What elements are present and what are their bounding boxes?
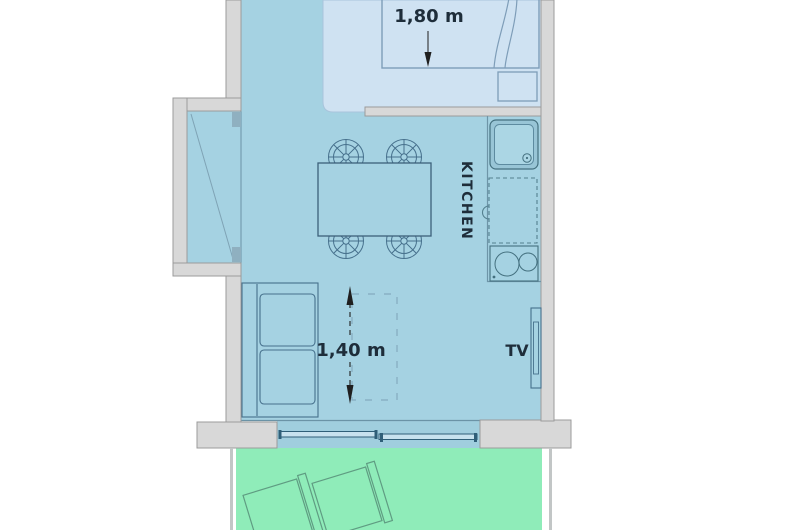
floor-plan: 1,80 m 1,40 m KITCHEN TV — [0, 0, 800, 530]
wall-bottom-left-block — [197, 422, 277, 448]
window-recess-floor — [187, 111, 241, 263]
door-panel-end — [380, 433, 383, 442]
terrace-right-edge — [549, 448, 552, 530]
wall-recess-left — [173, 98, 187, 276]
tv-label: TV — [505, 341, 529, 360]
floor-plan-drawing: 1,80 m 1,40 m KITCHEN TV — [0, 0, 800, 530]
door-panel-end — [474, 433, 477, 442]
wall-left-lower — [226, 276, 241, 423]
window-jamb-top — [232, 112, 241, 127]
wall-bedroom-divider — [365, 107, 541, 116]
window-recess — [187, 111, 241, 263]
cooktop-knob — [493, 276, 496, 279]
bed-dimension-label: 1,80 m — [394, 6, 463, 27]
terrace-left-edge — [230, 448, 233, 530]
wall-recess-bottom — [173, 263, 241, 276]
sofa-dimension-label: 1,40 m — [316, 340, 385, 361]
sliding-door-panel — [379, 434, 477, 440]
wall-bottom-right-block — [480, 420, 571, 448]
dining-table — [318, 163, 431, 236]
window-jamb-bottom — [232, 247, 241, 262]
door-panel-end — [375, 430, 378, 439]
sink-drain-dot — [526, 157, 528, 159]
door-panel-end — [279, 430, 282, 439]
sliding-door-panel — [280, 432, 377, 438]
wall-left-upper — [226, 0, 241, 98]
kitchen-label: KITCHEN — [458, 161, 474, 240]
terrace-floor — [236, 448, 542, 530]
kitchen-sink — [490, 120, 538, 169]
wall-right — [541, 0, 554, 421]
